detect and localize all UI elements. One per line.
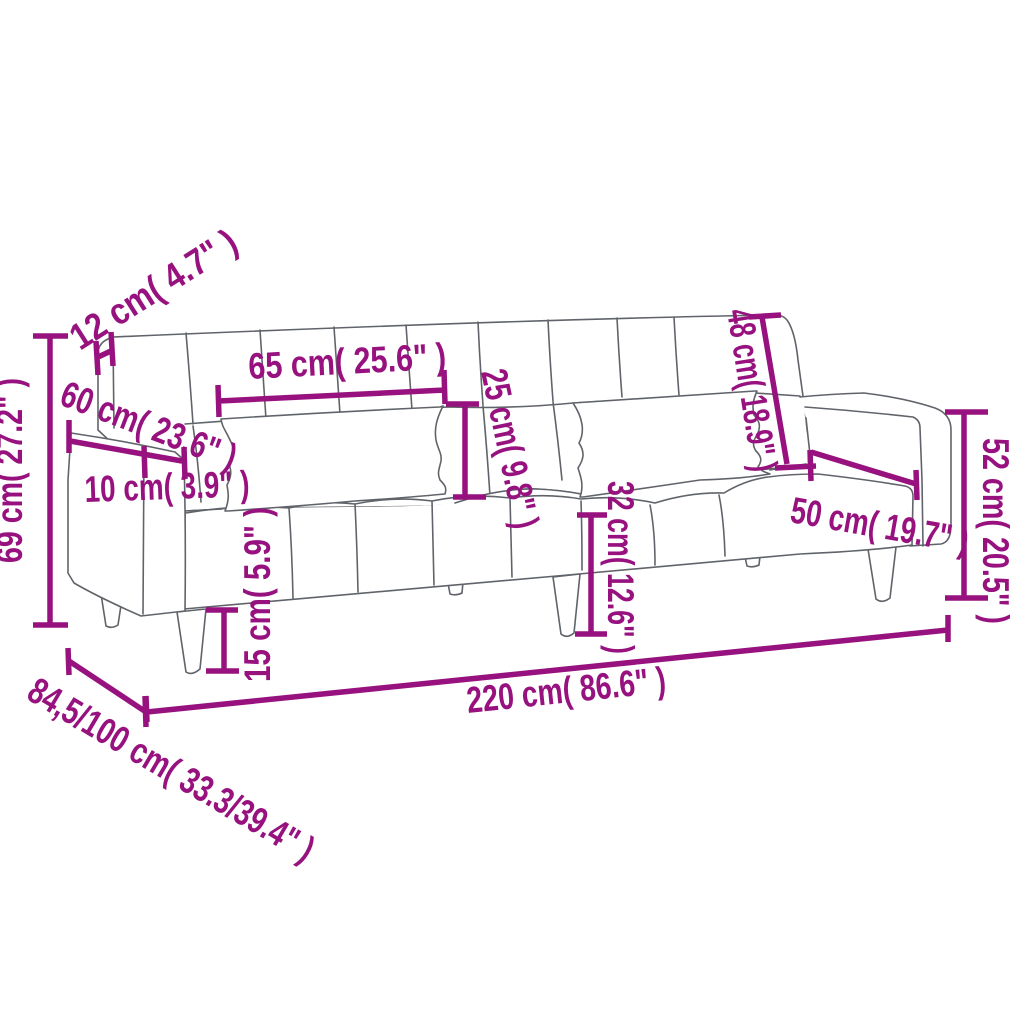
- svg-text:32 cm( 12.6" ): 32 cm( 12.6" ): [600, 481, 641, 654]
- svg-text:10 cm( 3.9" ): 10 cm( 3.9" ): [84, 463, 250, 510]
- svg-text:15 cm( 5.9" ): 15 cm( 5.9" ): [237, 507, 278, 682]
- svg-text:69 cm( 27.2" ): 69 cm( 27.2" ): [0, 378, 30, 563]
- svg-text:52 cm( 20.5" ): 52 cm( 20.5" ): [975, 438, 1016, 624]
